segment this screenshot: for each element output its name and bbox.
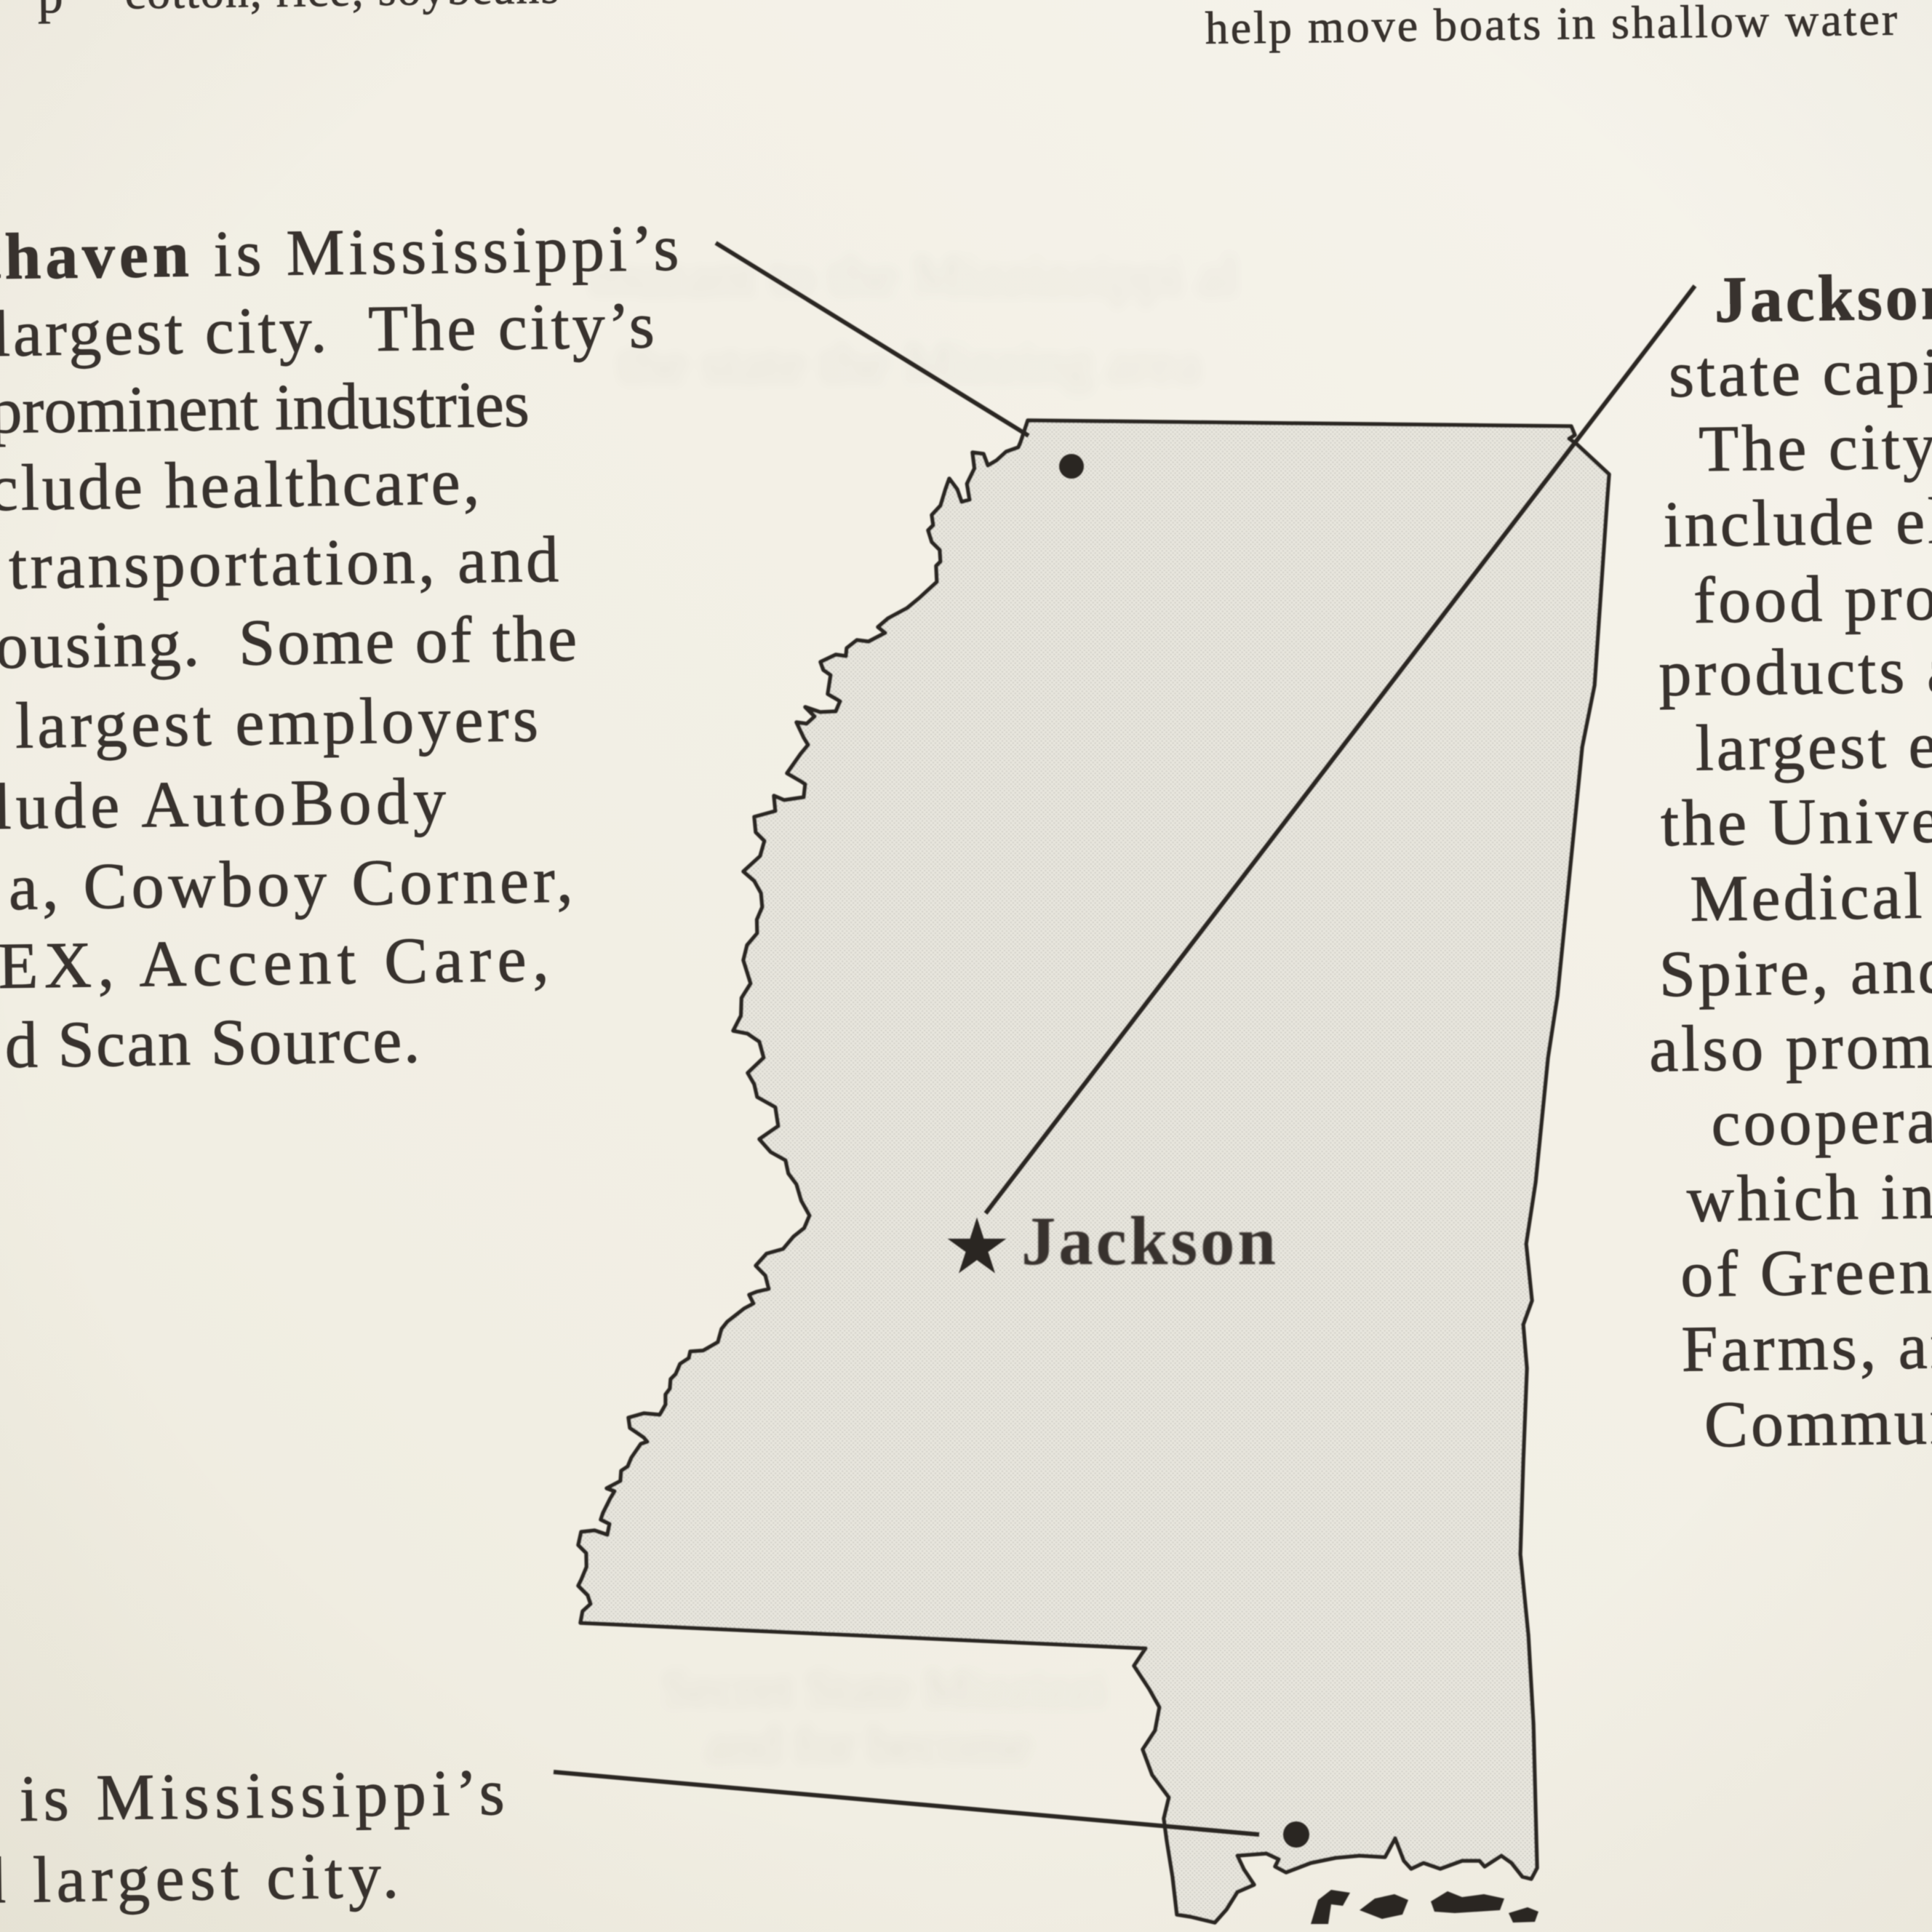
svg-text:lude AutoBody: lude AutoBody: [0, 765, 451, 843]
svg-text:Commun: Commun: [1704, 1386, 1932, 1461]
svg-text:prominent industries: prominent industries: [0, 368, 530, 447]
svg-text:state capit: state capit: [1668, 335, 1932, 411]
svg-text:Spire, and: Spire, and: [1658, 935, 1932, 1010]
svg-text:products a: products a: [1658, 634, 1932, 710]
svg-text:EX, Accent Care,: EX, Accent Care,: [0, 923, 556, 1002]
svg-text:largest employers: largest employers: [15, 683, 542, 762]
svg-text:ousing. Some of the: ousing. Some of the: [0, 603, 580, 682]
svg-text:Jackson: Jackson: [1021, 1202, 1279, 1280]
svg-text:and for become: and for become: [706, 1715, 1031, 1773]
svg-text:is Mississippi’s: is Mississippi’s: [19, 1757, 511, 1835]
svg-text:p: p: [37, 0, 63, 24]
svg-text:d Scan Source.: d Scan Source.: [4, 1004, 422, 1081]
svg-text:Farms, an: Farms, an: [1681, 1310, 1932, 1386]
svg-text:Jackson,: Jackson,: [1714, 260, 1932, 336]
svg-text:include ele: include ele: [1663, 484, 1932, 561]
svg-text:thaven is Mississippi’s: thaven is Mississippi’s: [0, 212, 684, 294]
svg-text:d largest city.: d largest city.: [0, 1840, 404, 1917]
svg-text:clude healthcare,: clude healthcare,: [0, 446, 483, 524]
svg-text:a, Cowboy Corner,: a, Cowboy Corner,: [8, 845, 578, 924]
svg-text:largest em: largest em: [1695, 708, 1932, 784]
svg-text:which in: which in: [1686, 1160, 1932, 1236]
svg-text:of Greenh: of Greenh: [1680, 1235, 1932, 1311]
svg-text:largest city. The city’s: largest city. The city’s: [0, 290, 658, 370]
svg-text:The city’s: The city’s: [1699, 410, 1932, 485]
svg-text:cooperat: cooperat: [1711, 1085, 1932, 1159]
svg-text:food proce: food proce: [1693, 561, 1932, 637]
svg-text:Secret State Mizzizzi: Secret State Mizzizzi: [662, 1659, 1107, 1717]
svg-text:also promo: also promo: [1649, 1010, 1932, 1086]
svg-text:help move boats in shallow wat: help move boats in shallow water: [1205, 0, 1899, 54]
svg-text:transportation, and: transportation, and: [9, 524, 563, 603]
svg-text:Medical C: Medical C: [1690, 859, 1932, 935]
svg-text:muzant to the Mizzizzippi al: muzant to the Mizzizzippi al: [589, 244, 1238, 307]
svg-text:the Univer: the Univer: [1660, 784, 1932, 861]
